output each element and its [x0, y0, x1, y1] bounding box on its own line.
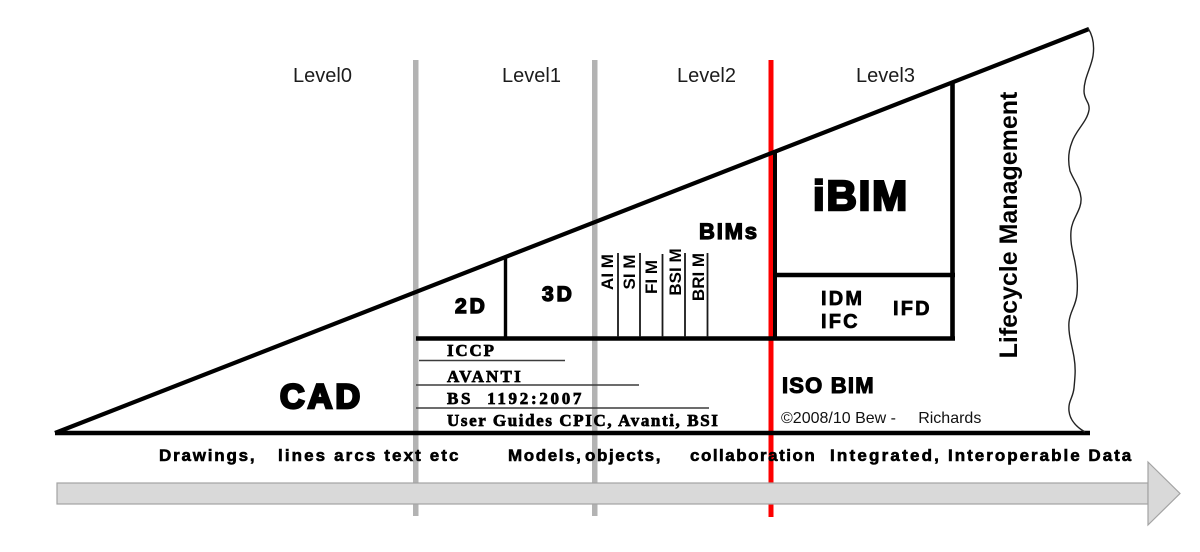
svg-text:BSI M: BSI M: [666, 248, 685, 295]
svg-text:AI M: AI M: [598, 254, 617, 290]
svg-text:SI M: SI M: [620, 255, 639, 290]
svg-text:Lifecycle Management: Lifecycle Management: [995, 91, 1023, 358]
svg-text:FI M: FI M: [642, 260, 661, 294]
svg-text:BRI M: BRI M: [689, 253, 708, 301]
